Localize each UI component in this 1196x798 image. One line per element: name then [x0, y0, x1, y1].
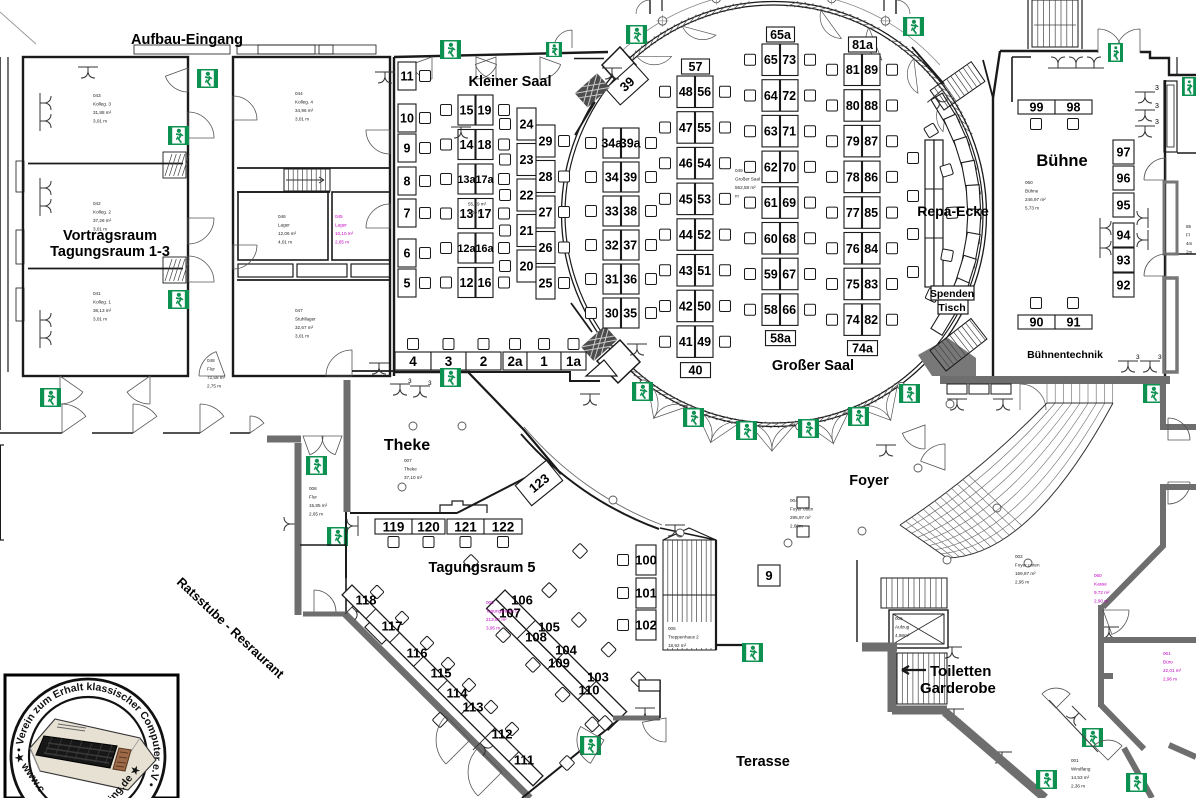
svg-text:3: 3	[1136, 354, 1140, 361]
svg-text:92: 92	[1117, 279, 1131, 293]
svg-text:63: 63	[764, 125, 778, 139]
svg-text:73: 73	[782, 53, 796, 67]
svg-text:28: 28	[539, 170, 553, 184]
svg-text:Tagungsraum 5: Tagungsraum 5	[486, 609, 518, 614]
svg-text:3: 3	[1158, 354, 1162, 361]
svg-text:047: 047	[295, 308, 303, 313]
svg-text:3: 3	[408, 378, 412, 385]
svg-text:3,01 m: 3,01 m	[295, 334, 309, 339]
svg-text:1a: 1a	[566, 354, 582, 369]
svg-text:38: 38	[623, 205, 637, 219]
svg-text:m: m	[735, 194, 739, 199]
svg-text:2m: 2m	[1186, 250, 1193, 255]
svg-text:Großer Saal: Großer Saal	[772, 358, 854, 374]
svg-text:85: 85	[1186, 224, 1192, 229]
svg-text:53: 53	[697, 192, 711, 206]
svg-text:87: 87	[864, 135, 878, 149]
svg-text:5,73 m: 5,73 m	[1025, 206, 1039, 211]
svg-text:Treppenhaus 2: Treppenhaus 2	[668, 635, 699, 640]
svg-text:86: 86	[864, 170, 878, 184]
svg-text:49: 49	[697, 335, 711, 349]
svg-text:12: 12	[460, 276, 474, 290]
svg-text:67: 67	[782, 268, 796, 282]
svg-text:20: 20	[520, 260, 534, 274]
svg-text:77: 77	[846, 206, 860, 220]
svg-text:93: 93	[1117, 254, 1131, 268]
svg-text:32,67 m²: 32,67 m²	[295, 325, 314, 330]
svg-text:Aufbau-Eingang: Aufbau-Eingang	[131, 32, 243, 48]
svg-text:76: 76	[846, 242, 860, 256]
svg-text:65a: 65a	[770, 28, 792, 42]
svg-text:3: 3	[428, 380, 432, 387]
svg-text:62: 62	[764, 160, 778, 174]
svg-text:4,98m²: 4,98m²	[895, 633, 910, 638]
svg-text:10,10 m²: 10,10 m²	[335, 231, 354, 236]
svg-text:2a: 2a	[507, 354, 523, 369]
svg-text:11: 11	[400, 70, 413, 84]
svg-text:16: 16	[478, 276, 492, 290]
svg-text:46: 46	[679, 157, 693, 171]
svg-text:19: 19	[478, 104, 492, 118]
svg-text:96: 96	[1117, 172, 1131, 186]
svg-text:98: 98	[1067, 101, 1081, 115]
svg-text:57: 57	[689, 60, 703, 74]
svg-text:34: 34	[605, 171, 619, 185]
svg-text:001: 001	[1071, 758, 1079, 763]
svg-text:48: 48	[679, 85, 693, 99]
svg-text:39: 39	[623, 171, 637, 185]
svg-text:112: 112	[492, 727, 513, 742]
svg-text:42: 42	[679, 300, 693, 314]
svg-text:3,00 m: 3,00 m	[468, 210, 482, 215]
svg-text:Tagungsraum 5: Tagungsraum 5	[429, 560, 536, 576]
svg-text:71: 71	[782, 125, 796, 139]
svg-text:046: 046	[278, 214, 286, 219]
svg-text:002: 002	[1015, 554, 1023, 559]
svg-text:Bühnentechnik: Bühnentechnik	[1027, 349, 1103, 361]
svg-text:119: 119	[383, 519, 405, 534]
svg-text:049: 049	[735, 168, 743, 173]
svg-text:9,72 m²: 9,72 m²	[1094, 590, 1110, 595]
svg-text:552,58 m²: 552,58 m²	[735, 185, 756, 190]
svg-text:102: 102	[635, 618, 657, 633]
svg-text:69: 69	[782, 196, 796, 210]
svg-text:37: 37	[623, 239, 637, 253]
svg-text:33: 33	[605, 205, 619, 219]
svg-text:9: 9	[404, 142, 411, 156]
svg-text:118: 118	[356, 593, 377, 608]
svg-text:75: 75	[846, 278, 860, 292]
svg-text:4,01 m: 4,01 m	[278, 240, 292, 245]
svg-text:3: 3	[1155, 119, 1159, 126]
svg-text:007: 007	[404, 458, 412, 463]
svg-text:51: 51	[697, 264, 711, 278]
svg-text:25: 25	[539, 277, 553, 291]
svg-text:2,65 m: 2,65 m	[309, 512, 323, 517]
svg-text:45: 45	[679, 192, 693, 206]
svg-text:122: 122	[492, 519, 515, 534]
svg-text:Spenden: Spenden	[930, 288, 974, 300]
svg-text:Kolleg. 3: Kolleg. 3	[93, 102, 111, 107]
svg-text:85: 85	[864, 206, 878, 220]
svg-text:88: 88	[864, 99, 878, 113]
svg-text:65: 65	[764, 53, 778, 67]
svg-text:95: 95	[1117, 199, 1131, 213]
svg-text:14,53 m²: 14,53 m²	[1071, 775, 1090, 780]
svg-text:Aufzug: Aufzug	[895, 625, 910, 630]
svg-text:Lager: Lager	[335, 223, 347, 228]
svg-text:005: 005	[668, 626, 676, 631]
svg-text:Kolleg. 1: Kolleg. 1	[93, 300, 111, 305]
svg-text:66: 66	[782, 303, 796, 317]
svg-text:84: 84	[864, 242, 878, 256]
svg-text:5: 5	[404, 277, 411, 291]
svg-text:Toiletten: Toiletten	[930, 663, 991, 680]
svg-text:91: 91	[1067, 316, 1081, 330]
svg-text:045: 045	[335, 214, 343, 219]
svg-text:116: 116	[407, 646, 428, 661]
svg-text:Stuhllager: Stuhllager	[295, 317, 316, 322]
svg-text:31,88 m²: 31,88 m²	[93, 110, 112, 115]
svg-text:2,96 m: 2,96 m	[1163, 677, 1177, 682]
svg-text:Tisch: Tisch	[938, 302, 965, 314]
svg-text:Theke: Theke	[384, 437, 430, 454]
svg-text:15,85 m²: 15,85 m²	[309, 503, 328, 508]
svg-text:47: 47	[679, 121, 693, 135]
svg-text:169,87 m²: 169,87 m²	[1015, 571, 1036, 576]
svg-text:81a: 81a	[852, 38, 874, 52]
svg-text:99: 99	[1030, 101, 1044, 115]
svg-text:27: 27	[539, 206, 553, 220]
svg-text:044: 044	[295, 91, 303, 96]
svg-text:Repa-Ecke: Repa-Ecke	[917, 203, 989, 219]
svg-text:72,58 m²: 72,58 m²	[207, 375, 226, 380]
svg-text:Flur: Flur	[207, 367, 215, 372]
svg-text:Vortragsraum: Vortragsraum	[63, 228, 157, 244]
svg-text:114: 114	[447, 686, 469, 701]
svg-text:9: 9	[765, 568, 772, 583]
svg-text:64: 64	[764, 89, 778, 103]
svg-text:Großer Saal: Großer Saal	[735, 177, 760, 182]
svg-text:81: 81	[846, 63, 860, 77]
svg-text:Kolleg. 4: Kolleg. 4	[295, 100, 313, 105]
svg-text:Lager: Lager	[278, 223, 290, 228]
svg-text:2: 2	[480, 354, 488, 369]
svg-text:Kasse: Kasse	[1094, 582, 1107, 587]
svg-text:68: 68	[782, 232, 796, 246]
svg-text:Kolleg. 2: Kolleg. 2	[93, 210, 111, 215]
svg-text:113: 113	[463, 700, 484, 715]
svg-text:54: 54	[697, 157, 711, 171]
svg-text:2,75 m: 2,75 m	[207, 384, 221, 389]
svg-text:22: 22	[520, 189, 534, 203]
svg-text:006: 006	[486, 600, 494, 605]
svg-text:12a: 12a	[457, 243, 476, 255]
svg-text:74a: 74a	[852, 342, 874, 356]
svg-text:70: 70	[782, 160, 796, 174]
svg-text:74: 74	[846, 313, 860, 327]
svg-text:109: 109	[548, 656, 570, 671]
svg-text:58: 58	[764, 303, 778, 317]
svg-text:Bühne: Bühne	[1036, 152, 1087, 170]
svg-text:7: 7	[404, 207, 411, 221]
svg-text:13a: 13a	[457, 174, 476, 186]
svg-text:4m: 4m	[1186, 241, 1193, 246]
svg-text:36: 36	[623, 273, 637, 287]
svg-text:83: 83	[864, 278, 878, 292]
svg-text:40: 40	[689, 364, 703, 378]
svg-text:2,85 m: 2,85 m	[335, 240, 349, 245]
svg-text:2,36 m: 2,36 m	[1071, 784, 1085, 789]
svg-text:35: 35	[623, 307, 637, 321]
svg-text:50: 50	[697, 300, 711, 314]
svg-text:Fl: Fl	[1186, 233, 1190, 238]
svg-text:061: 061	[1163, 651, 1171, 656]
svg-text:Foyer: Foyer	[849, 473, 889, 489]
svg-text:10: 10	[400, 112, 414, 126]
svg-text:34,96 m²: 34,96 m²	[295, 108, 314, 113]
svg-text:58a: 58a	[770, 332, 792, 346]
svg-text:Garderobe: Garderobe	[920, 680, 996, 697]
svg-text:61: 61	[764, 196, 778, 210]
svg-text:008: 008	[309, 486, 317, 491]
svg-text:32: 32	[605, 239, 619, 253]
svg-text:295,97 m²: 295,97 m²	[790, 515, 811, 520]
svg-text:18: 18	[478, 138, 492, 152]
svg-text:23: 23	[520, 153, 534, 167]
svg-text:2,60m: 2,60m	[790, 524, 803, 529]
svg-text:79: 79	[846, 135, 860, 149]
svg-text:3: 3	[1155, 103, 1159, 110]
svg-text:Tagungsraum 1-3: Tagungsraum 1-3	[50, 244, 170, 260]
svg-text:Büro: Büro	[1163, 660, 1173, 665]
svg-text:213,87 m²: 213,87 m²	[486, 617, 507, 622]
svg-text:90: 90	[1030, 316, 1044, 330]
svg-text:80: 80	[846, 99, 860, 113]
svg-text:005: 005	[895, 616, 903, 621]
svg-text:37,26 m²: 37,26 m²	[93, 218, 112, 223]
svg-text:108: 108	[525, 630, 547, 645]
svg-text:41: 41	[679, 335, 693, 349]
svg-text:2,90 m: 2,90 m	[1094, 599, 1108, 604]
svg-text:004: 004	[790, 498, 798, 503]
svg-text:36,13 m²: 36,13 m²	[93, 308, 112, 313]
svg-text:12,06 m²: 12,06 m²	[278, 231, 297, 236]
svg-text:21: 21	[520, 224, 534, 238]
svg-text:Windfang: Windfang	[1071, 767, 1091, 772]
svg-text:Foyer unten: Foyer unten	[1015, 563, 1040, 568]
svg-text:55: 55	[697, 121, 711, 135]
svg-text:26: 26	[539, 241, 553, 255]
svg-text:060: 060	[1094, 573, 1102, 578]
svg-text:2,95 m: 2,95 m	[1015, 580, 1029, 585]
svg-text:042: 042	[93, 201, 101, 206]
svg-text:110: 110	[579, 683, 600, 698]
svg-text:043: 043	[93, 93, 101, 98]
svg-text:30: 30	[605, 307, 619, 321]
svg-text:Bühne: Bühne	[1025, 189, 1039, 194]
svg-text:59: 59	[764, 268, 778, 282]
svg-text:17a: 17a	[475, 174, 494, 186]
svg-text:94: 94	[1117, 229, 1131, 243]
svg-text:101: 101	[635, 586, 657, 601]
svg-text:100: 100	[635, 553, 657, 568]
svg-text:18,92 m²: 18,92 m²	[668, 643, 687, 648]
svg-text:15: 15	[460, 104, 474, 118]
svg-text:Kleiner Saal: Kleiner Saal	[468, 74, 551, 90]
svg-text:3,01 m: 3,01 m	[93, 119, 107, 124]
svg-text:24: 24	[520, 118, 534, 132]
svg-text:89: 89	[864, 63, 878, 77]
svg-text:78: 78	[846, 170, 860, 184]
svg-text:16a: 16a	[475, 243, 494, 255]
svg-text:72: 72	[782, 89, 796, 103]
svg-text:121: 121	[454, 519, 477, 534]
svg-text:048: 048	[207, 358, 215, 363]
svg-text:31: 31	[605, 273, 619, 287]
svg-text:060: 060	[1025, 180, 1033, 185]
svg-text:82: 82	[864, 313, 878, 327]
svg-text:37,10 m²: 37,10 m²	[404, 475, 423, 480]
svg-text:Theke: Theke	[404, 467, 417, 472]
svg-text:44: 44	[679, 228, 693, 242]
svg-text:Flur: Flur	[309, 495, 317, 500]
svg-text:3: 3	[445, 354, 453, 369]
svg-text:8: 8	[404, 175, 411, 189]
svg-text:3,95 m: 3,95 m	[486, 626, 500, 631]
svg-text:52: 52	[697, 228, 711, 242]
svg-text:22,01 m²: 22,01 m²	[1163, 668, 1182, 673]
svg-text:55,49 m²: 55,49 m²	[468, 202, 487, 207]
svg-text:117: 117	[382, 619, 403, 634]
svg-text:246,97 m²: 246,97 m²	[1025, 197, 1046, 202]
svg-text:111: 111	[514, 753, 534, 768]
svg-text:60: 60	[764, 232, 778, 246]
svg-text:041: 041	[93, 291, 101, 296]
svg-text:115: 115	[431, 666, 452, 681]
svg-text:3: 3	[1155, 85, 1159, 92]
svg-text:29: 29	[539, 135, 553, 149]
svg-text:120: 120	[417, 519, 440, 534]
svg-text:4: 4	[409, 354, 417, 369]
svg-text:39a: 39a	[620, 137, 642, 151]
svg-text:14: 14	[460, 138, 474, 152]
svg-text:43: 43	[679, 264, 693, 278]
svg-text:Terasse: Terasse	[736, 754, 790, 770]
svg-text:3,01 m: 3,01 m	[93, 317, 107, 322]
svg-text:1: 1	[540, 354, 548, 369]
svg-text:56: 56	[697, 85, 711, 99]
svg-text:3,01 m: 3,01 m	[295, 117, 309, 122]
svg-text:6: 6	[404, 247, 411, 261]
svg-text:97: 97	[1117, 146, 1131, 160]
svg-text:Foyer oben: Foyer oben	[790, 507, 814, 512]
